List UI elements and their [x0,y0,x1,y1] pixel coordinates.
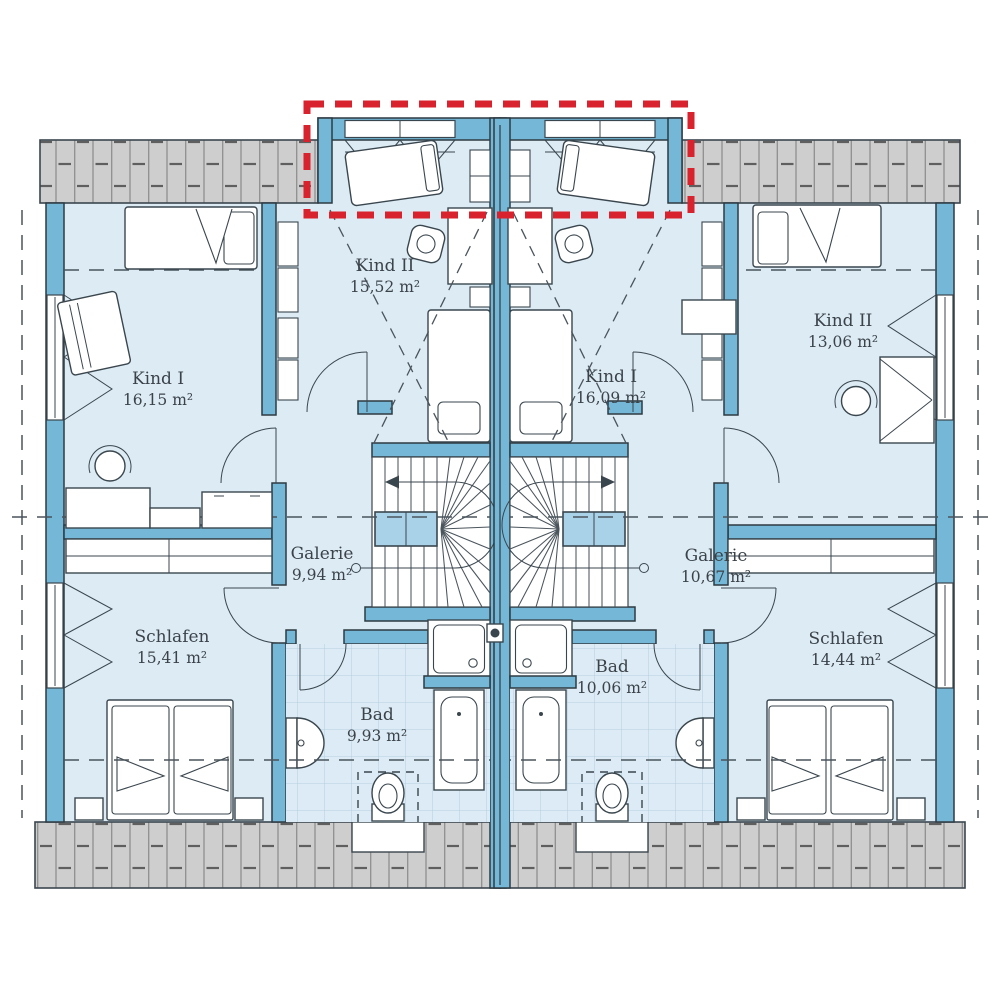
room-area: 16,09 m² [576,389,646,409]
dresser [202,492,272,528]
room-label-schlafen-left: Schlafen 15,41 m² [135,627,210,669]
bed-single [753,205,881,267]
room-label-bad-right: Bad 10,06 m² [577,657,647,699]
unit-right-geometry [494,118,988,888]
room-label-galerie-right: Galerie 10,67 m² [681,546,751,588]
room-label-bad-left: Bad 9,93 m² [347,705,407,747]
room-label-kind1-right: Kind I 16,09 m² [576,367,646,409]
room-area: 10,67 m² [681,568,751,588]
room-area: 16,15 m² [123,391,193,411]
bed-single [125,207,257,269]
room-name: Schlafen [809,629,884,649]
room-area: 9,94 m² [291,566,354,586]
room-name: Galerie [685,546,748,566]
room-area: 14,44 m² [809,651,884,671]
room-name: Kind II [356,256,415,276]
room-name: Schlafen [135,627,210,647]
side-table [150,508,200,528]
desk [66,488,150,528]
room-name: Galerie [291,544,354,564]
room-label-kind2-right: Kind II 13,06 m² [808,311,878,353]
room-label-galerie-left: Galerie 9,94 m² [291,544,354,586]
room-label-schlafen-right: Schlafen 14,44 m² [809,629,884,671]
room-area: 13,06 m² [808,333,878,353]
wardrobe [880,357,934,443]
room-name: Kind II [814,311,873,331]
room-label-kind2-left: Kind II 15,52 m² [350,256,420,298]
side-table [682,300,736,334]
room-name: Kind I [132,369,184,389]
room-name: Bad [360,705,394,725]
room-area: 10,06 m² [577,679,647,699]
floorplan-svg [0,0,1000,1000]
floor-plan-page: Kind I 16,15 m² Kind II 15,52 m² Galerie… [0,0,1000,1000]
room-area: 15,52 m² [350,278,420,298]
room-area: 15,41 m² [135,649,210,669]
room-name: Kind I [585,367,637,387]
flue [487,624,503,642]
room-name: Bad [595,657,629,677]
room-area: 9,93 m² [347,727,407,747]
room-label-kind1-left: Kind I 16,15 m² [123,369,193,411]
